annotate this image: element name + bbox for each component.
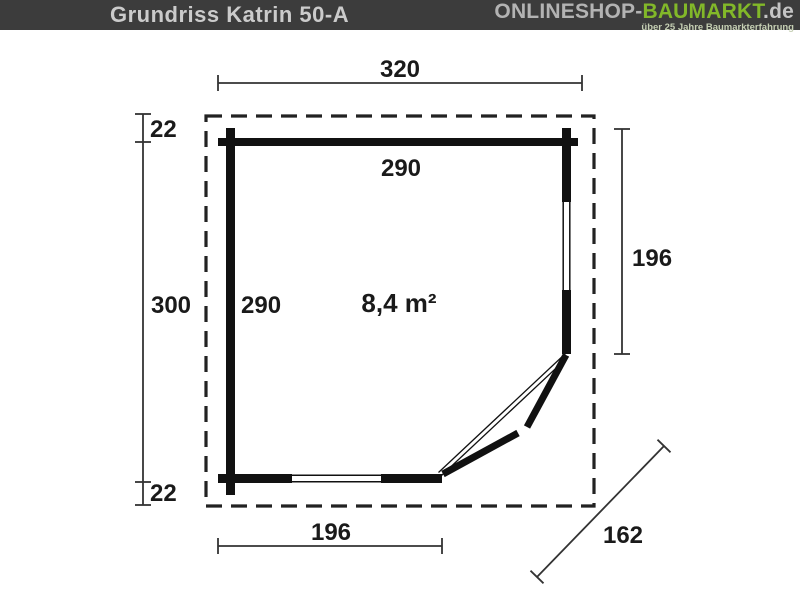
bottom-wall-left	[218, 474, 292, 483]
bottom-wall-window	[292, 475, 381, 482]
floorplan-drawing: 320 22 300 22 290 290 8,4 m² 196 196 162	[0, 0, 800, 600]
dim-label-290-top: 290	[381, 155, 421, 182]
right-wall-window	[563, 202, 570, 290]
dim-left-column	[135, 114, 151, 505]
dim-label-22-top: 22	[150, 116, 177, 143]
left-wall	[226, 128, 235, 495]
logo-tagline: über 25 Jahre Baumarkterfahrung	[494, 23, 794, 33]
dim-label-196-bottom: 196	[311, 519, 351, 546]
dim-label-162: 162	[603, 522, 643, 549]
corner-door	[439, 354, 569, 476]
dim-196-right	[614, 129, 630, 354]
page-title: Grundriss Katrin 50-A	[110, 2, 349, 28]
top-wall	[218, 138, 578, 146]
dim-label-320: 320	[380, 56, 420, 83]
door-leaf-upper	[527, 355, 566, 427]
area-label: 8,4 m²	[361, 288, 436, 318]
dim-162-diagonal	[531, 440, 671, 584]
dim-label-300: 300	[151, 292, 191, 319]
header-bar: Grundriss Katrin 50-A ONLINESHOP-BAUMARK…	[0, 0, 800, 30]
right-wall-lower	[562, 290, 571, 354]
bottom-wall-right	[381, 474, 442, 483]
dim-label-196-right: 196	[632, 245, 672, 272]
logo-part-baumarkt: BAUMARKT	[642, 0, 763, 23]
logo-part-onlineshop: ONLINESHOP-	[494, 0, 642, 23]
shop-logo: ONLINESHOP-BAUMARKT.de über 25 Jahre Bau…	[494, 1, 794, 33]
shop-logo-wordmark: ONLINESHOP-BAUMARKT.de	[494, 1, 794, 22]
windows	[292, 202, 570, 482]
door-threshold-line-outer	[439, 354, 566, 473]
dim-label-290-left: 290	[241, 292, 281, 319]
dim-label-22-bottom: 22	[150, 480, 177, 507]
right-wall-upper	[562, 128, 571, 202]
door-threshold-line-inner	[442, 357, 569, 476]
logo-part-de: .de	[763, 0, 794, 23]
